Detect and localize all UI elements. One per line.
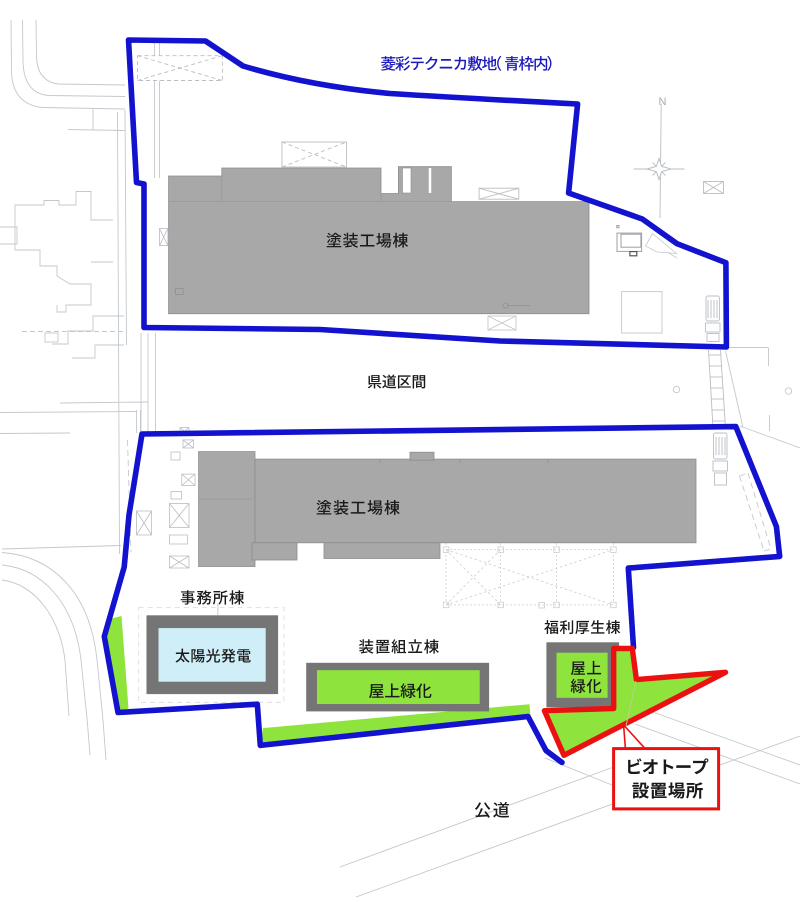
svg-text:N: N [659, 96, 667, 108]
